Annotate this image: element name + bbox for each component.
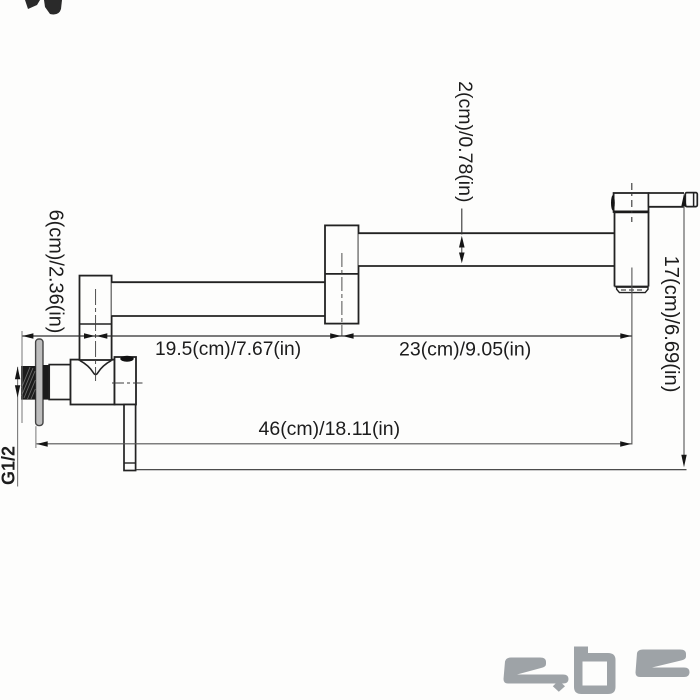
svg-text:23(cm)/9.05(in): 23(cm)/9.05(in) xyxy=(399,339,531,361)
svg-text:46(cm)/18.11(in): 46(cm)/18.11(in) xyxy=(259,418,401,440)
svg-text:19.5(cm)/7.67(in): 19.5(cm)/7.67(in) xyxy=(155,339,301,360)
svg-text:17(cm)/6.69(in): 17(cm)/6.69(in) xyxy=(660,256,682,393)
svg-text:2(cm)/0.78(in): 2(cm)/0.78(in) xyxy=(454,81,476,202)
svg-text:6(cm)/2.36(in): 6(cm)/2.36(in) xyxy=(45,210,67,334)
svg-text:G1/2: G1/2 xyxy=(0,446,19,485)
